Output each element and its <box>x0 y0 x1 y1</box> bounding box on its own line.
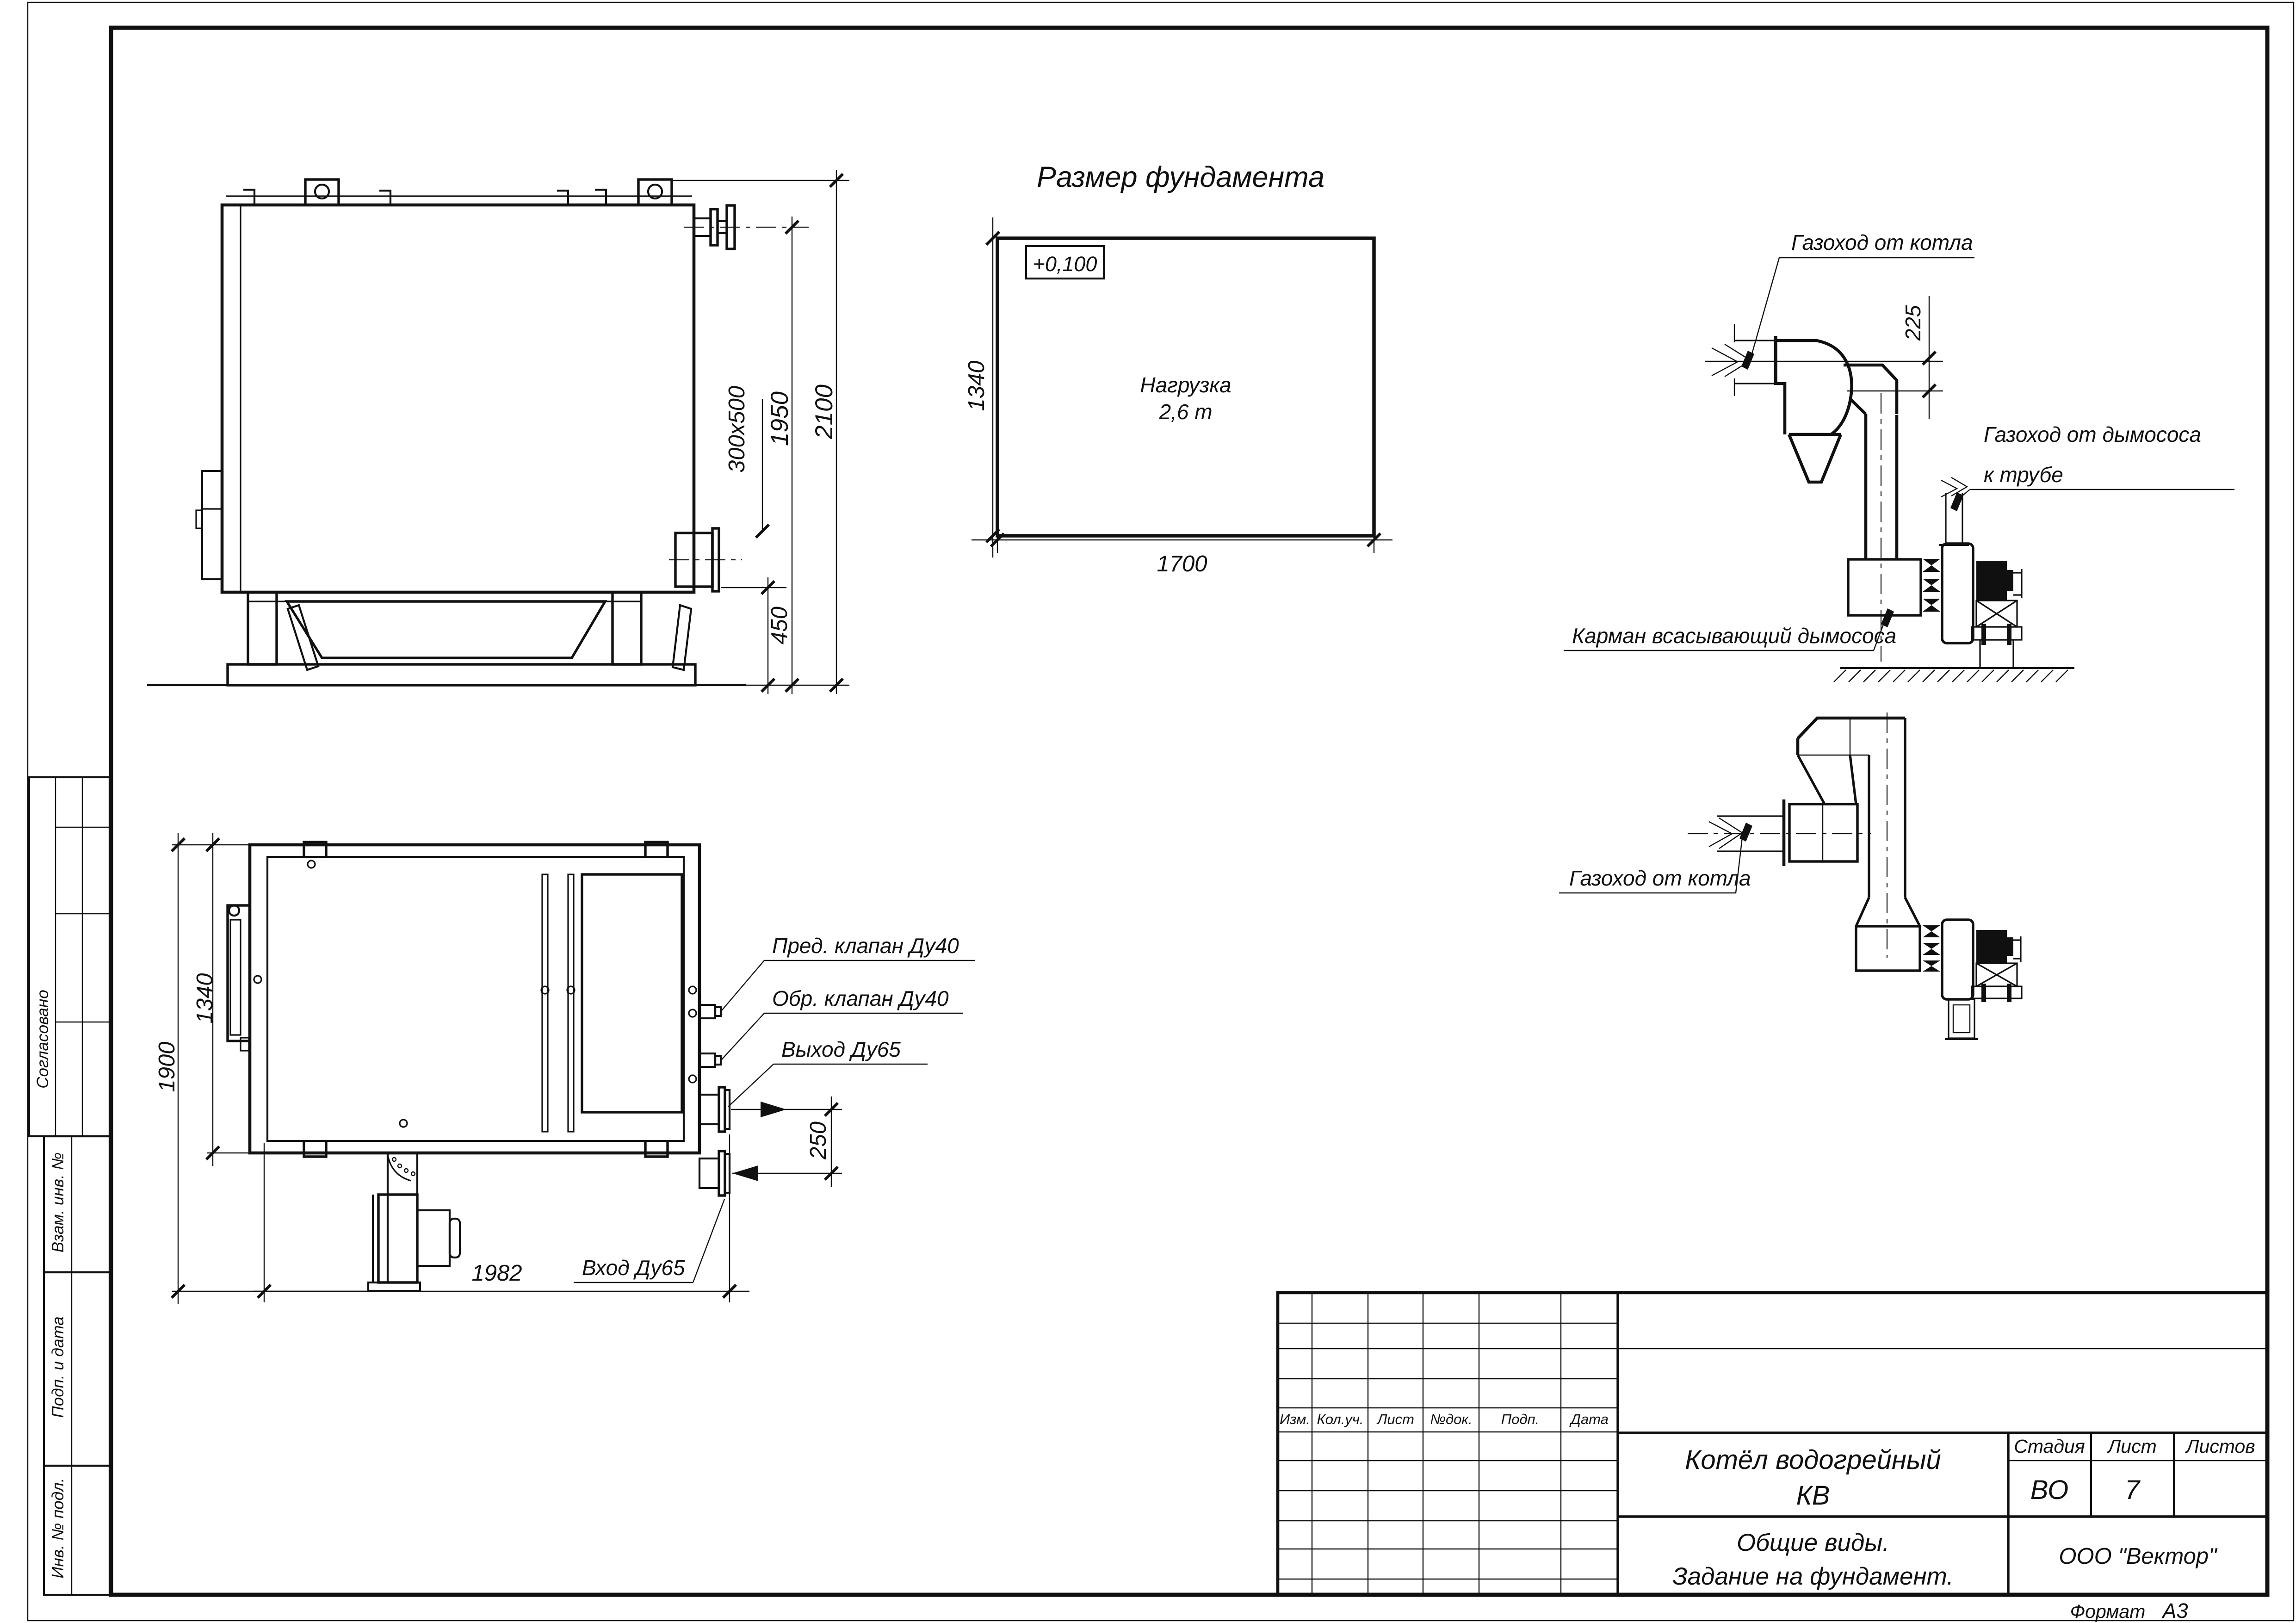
boiler-duct-box <box>1789 804 1857 861</box>
divider-wall <box>542 874 548 1132</box>
boiler-duct-label: Газоход от котла <box>1569 866 1751 890</box>
support-leg <box>613 592 641 664</box>
title-block: Изм. Кол.уч. Лист №док. Подп. Дата Котёл… <box>1278 1293 2267 1595</box>
dim-width-inner: 1340 <box>192 973 217 1023</box>
flow-arrow-out-icon <box>761 1102 786 1117</box>
ash-pan <box>287 601 605 658</box>
dim-width-outer: 1900 <box>155 1041 179 1092</box>
safety-valve-cap <box>715 1007 721 1016</box>
length-dim-line <box>972 536 1392 553</box>
frame-brace <box>1976 601 2017 627</box>
dim-length: 1982 <box>471 1261 522 1286</box>
lifting-lug <box>638 180 672 205</box>
motor-shaft-cap <box>2007 937 2013 956</box>
header-kol: Кол.уч. <box>1317 1411 1363 1427</box>
leader-arrow-icon <box>1741 351 1754 370</box>
approved-label: Согласовано <box>34 990 52 1088</box>
lifting-lug <box>305 180 339 205</box>
stage-header: Стадия <box>2014 1436 2085 1457</box>
boiler-plan-view: 250 Пред. клапан Ду40 Обр. клапан Ду40 В… <box>155 833 975 1304</box>
header-data: Дата <box>1569 1411 1609 1427</box>
elevation-mark: +0,100 <box>1033 252 1097 276</box>
dim-length: 1700 <box>1157 551 1207 576</box>
duct-clip <box>229 905 239 916</box>
side-hatch-box <box>202 471 222 579</box>
burner-motor-cap <box>450 1219 460 1258</box>
side-hatch-detail <box>196 509 222 528</box>
leader-line <box>728 1064 928 1107</box>
dim-duct: 225 <box>1901 305 1925 341</box>
boiler-duct-lines <box>1734 341 1776 384</box>
doc-name-line2: КВ <box>1796 1481 1830 1511</box>
fan-base <box>1972 986 2022 998</box>
boiler-duct-label: Газоход от котла <box>1791 230 1973 254</box>
riser-transition <box>1798 755 1856 804</box>
burner-motor <box>417 1210 450 1266</box>
approved-grid <box>56 777 110 1136</box>
boiler-plan-inner <box>267 857 684 1141</box>
flow-arrow-in-icon <box>732 1165 758 1181</box>
safety-valve-label: Пред. клапан Ду40 <box>772 934 959 958</box>
rear-door <box>582 874 682 1112</box>
safety-valve-nozzle <box>699 1005 715 1018</box>
inlet-label: Вход Ду65 <box>582 1256 685 1280</box>
base-plate <box>228 664 695 685</box>
dim-flange-height: 1950 <box>766 391 793 446</box>
bolt-hole <box>689 986 696 994</box>
flange-bolts <box>1923 925 1940 972</box>
header-doc: №док. <box>1430 1411 1472 1427</box>
load-line1: Нагрузка <box>1140 373 1231 397</box>
pocket-label: Карман всасывающий дымососа <box>1572 624 1896 648</box>
fan-housing <box>1942 920 1973 999</box>
elbow-bolt <box>392 1158 396 1161</box>
dim-nozzles: 250 <box>806 1121 831 1160</box>
bolt-hole <box>308 861 315 868</box>
elbow-inner-lines <box>1798 718 1869 755</box>
inlet-flange-2 <box>725 1154 730 1193</box>
bolt-hole <box>400 1120 407 1127</box>
duct-step <box>241 1038 249 1051</box>
bolt-hole <box>689 1010 696 1017</box>
fan-motor <box>1976 561 2007 601</box>
cyclone-cone <box>1789 434 1841 482</box>
load-line2: 2,6 т <box>1158 400 1212 424</box>
flange-bolts <box>1923 559 1940 612</box>
revision-grid-rows <box>1278 1323 1618 1579</box>
frame-brace <box>1976 963 2017 986</box>
flue-elevation-1: Газоход от котла 225 Газоход от дымососа… <box>1564 230 2234 682</box>
boiler-side-view: 2100 1950 450 300x500 <box>147 170 849 694</box>
fan-stand-inner <box>1953 1005 1970 1033</box>
elbow-bolt <box>404 1169 408 1172</box>
suction-pocket <box>1848 559 1921 615</box>
ground-hatch <box>1834 670 2068 682</box>
fan-duct-label-line2: к трубе <box>1984 463 2063 487</box>
subtitle-line1: Общие виды. <box>1737 1529 1889 1556</box>
dim-outlet-height: 450 <box>767 607 792 644</box>
margin-box-2-label: Подп. и дата <box>49 1316 67 1418</box>
check-valve-nozzle <box>699 1053 715 1067</box>
outlet-size-label: 300x500 <box>724 386 749 473</box>
support-brace <box>288 605 318 670</box>
drawing-canvas: Согласовано Взам. инв. № Подп. и дата Ин… <box>0 0 2296 1623</box>
support-leg <box>248 592 277 664</box>
motor-bracket <box>2013 936 2021 962</box>
top-tabs <box>243 190 606 205</box>
cyclone-volute <box>1776 341 1852 434</box>
margin-box-1-label: Взам. инв. № <box>49 1152 67 1252</box>
subtitle-line2: Задание на фундамент. <box>1672 1563 1954 1590</box>
check-valve-cap <box>715 1056 721 1065</box>
divider-wall <box>568 874 574 1132</box>
elbow-bolt <box>398 1164 402 1168</box>
inlet-nozzle <box>699 1158 719 1188</box>
motor-bracket <box>2013 569 2022 598</box>
fan-base <box>1972 627 2022 640</box>
clamp-brackets <box>304 842 668 1157</box>
margin-column: Согласовано Взам. инв. № Подп. и дата Ин… <box>29 777 110 1595</box>
flue-elbow <box>1798 718 1905 755</box>
extension-lines <box>172 845 730 1302</box>
outlet-label: Выход Ду65 <box>781 1037 901 1061</box>
foundation-title: Размер фундамента <box>1037 161 1324 193</box>
fan-motor <box>1976 930 2007 963</box>
drawing-sheet: Согласовано Взам. инв. № Подп. и дата Ин… <box>0 0 2296 1623</box>
header-podp: Подп. <box>1501 1411 1540 1427</box>
format-label: Формат <box>2070 1601 2146 1622</box>
dim-total-height: 2100 <box>811 384 838 440</box>
header-list: Лист <box>1376 1411 1414 1427</box>
elbow-bolt <box>411 1172 415 1176</box>
stage-value: ВО <box>2030 1475 2069 1505</box>
left-duct-inner <box>230 920 241 1035</box>
outlet-flange-2 <box>725 1090 730 1129</box>
dim-ticks <box>172 838 736 1298</box>
check-valve-label: Обр. клапан Ду40 <box>772 986 949 1010</box>
sheet-header: Лист <box>2106 1436 2157 1457</box>
dim-width: 1340 <box>964 360 989 411</box>
sheet-number: 7 <box>2125 1475 2141 1505</box>
bolt-hole <box>689 1075 696 1083</box>
flue-elevation-2: Газоход от котла <box>1559 712 2022 1039</box>
doc-name-line1: Котёл водогрейный <box>1685 1445 1941 1475</box>
pocket-transition <box>1856 898 1920 926</box>
margin-box-3-label: Инв. № подл. <box>49 1478 67 1578</box>
support-brace <box>673 605 691 670</box>
format-value: А3 <box>2161 1599 2188 1623</box>
bolt-hole <box>254 976 261 983</box>
boiler-plan-outline <box>250 845 699 1153</box>
company-name: ООО "Вектор" <box>2059 1544 2218 1569</box>
cyclone-left-edge <box>1776 384 1785 434</box>
header-izm: Изм. <box>1280 1411 1310 1427</box>
bolt-holes <box>254 861 696 1127</box>
motor-shaft-cap <box>2007 570 2013 591</box>
fan-duct-label-line1: Газоход от дымососа <box>1984 422 2201 446</box>
drawing-frame <box>111 28 2267 1595</box>
outlet-nozzle <box>699 1095 719 1124</box>
sheets-header: Листов <box>2185 1436 2255 1457</box>
suction-pocket <box>1856 926 1920 971</box>
burner-body <box>378 1195 417 1282</box>
fan-housing <box>1942 544 1973 643</box>
boiler-body <box>222 205 694 592</box>
foundation-plan: Размер фундамента +0,100 Нагрузка 2,6 т … <box>964 161 1392 576</box>
